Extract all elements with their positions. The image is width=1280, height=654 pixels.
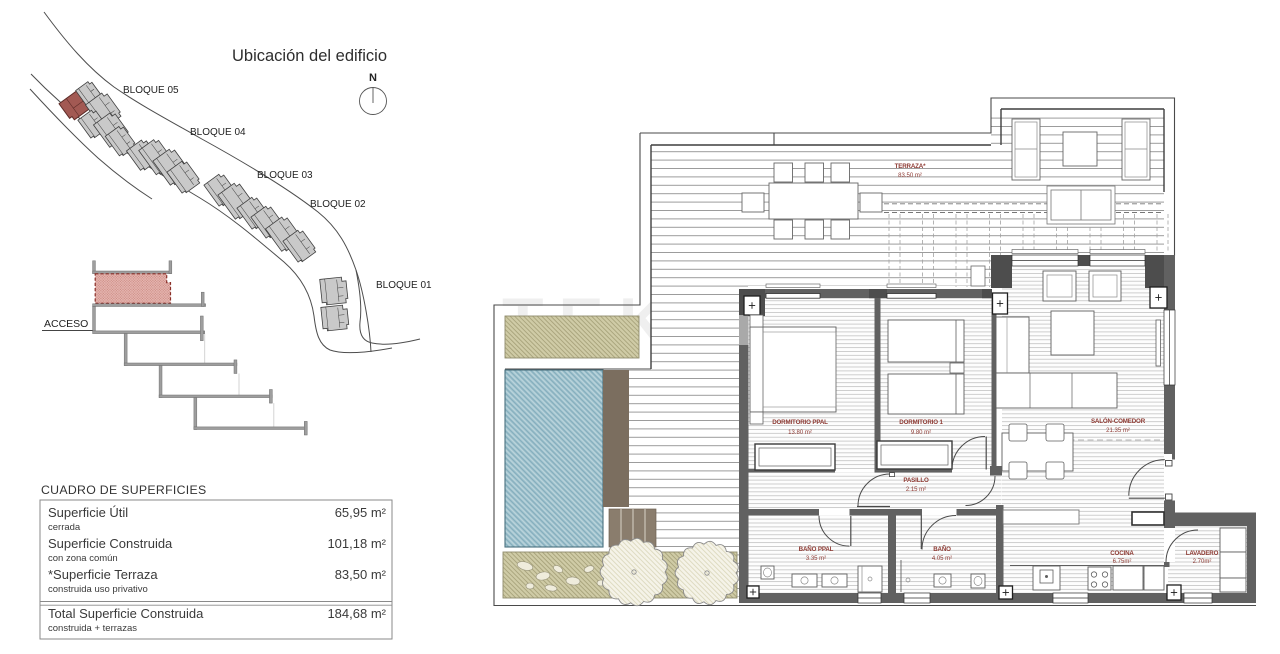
- svg-text:cerrada: cerrada: [48, 522, 81, 533]
- svg-text:4.05 m²: 4.05 m²: [932, 556, 952, 562]
- svg-text:Superficie Útil: Superficie Útil: [48, 505, 128, 520]
- svg-text:83.50 m²: 83.50 m²: [898, 173, 922, 179]
- svg-text:construida uso privativo: construida uso privativo: [48, 584, 148, 595]
- svg-text:83,50 m²: 83,50 m²: [335, 567, 387, 582]
- svg-text:construida + terrazas: construida + terrazas: [48, 623, 137, 634]
- svg-text:Superficie Construida: Superficie Construida: [48, 536, 173, 551]
- svg-text:101,18 m²: 101,18 m²: [327, 536, 386, 551]
- svg-text:6.75m²: 6.75m²: [1113, 559, 1132, 565]
- svg-text:*Superficie Terraza: *Superficie Terraza: [48, 567, 158, 582]
- svg-text:BAÑO: BAÑO: [933, 546, 951, 553]
- svg-text:COCINA: COCINA: [1110, 550, 1134, 557]
- svg-text:9.80 m²: 9.80 m²: [911, 430, 931, 436]
- svg-text:184,68 m²: 184,68 m²: [327, 606, 386, 621]
- svg-text:BAÑO PPAL: BAÑO PPAL: [799, 546, 834, 553]
- svg-text:BLOQUE 02: BLOQUE 02: [310, 199, 366, 210]
- svg-text:BLOQUE 01: BLOQUE 01: [376, 280, 432, 291]
- svg-text:65,95 m²: 65,95 m²: [335, 505, 387, 520]
- svg-text:DORMITORIO 1: DORMITORIO 1: [899, 419, 943, 426]
- svg-text:N: N: [369, 72, 377, 84]
- svg-text:2.70m²: 2.70m²: [1193, 559, 1212, 565]
- svg-text:21.35 m²: 21.35 m²: [1106, 428, 1130, 434]
- svg-text:BLOQUE 04: BLOQUE 04: [190, 127, 246, 138]
- svg-text:Ubicación del edificio: Ubicación del edificio: [232, 47, 387, 65]
- svg-text:BLOQUE 03: BLOQUE 03: [257, 170, 313, 181]
- svg-text:BLOQUE 05: BLOQUE 05: [123, 85, 179, 96]
- svg-text:ACCESO: ACCESO: [44, 318, 88, 330]
- svg-text:TERRAZA*: TERRAZA*: [895, 163, 927, 170]
- svg-text:PASILLO: PASILLO: [903, 477, 929, 484]
- svg-text:con zona común: con zona común: [48, 553, 118, 564]
- svg-text:CUADRO DE SUPERFICIES: CUADRO DE SUPERFICIES: [41, 483, 207, 497]
- svg-text:Total Superficie Construida: Total Superficie Construida: [48, 606, 204, 621]
- svg-text:2.15 m²: 2.15 m²: [906, 487, 926, 493]
- svg-text:LAVADERO: LAVADERO: [1186, 550, 1219, 557]
- svg-text:DORMITORIO PPAL: DORMITORIO PPAL: [772, 419, 828, 426]
- svg-text:3.35 m²: 3.35 m²: [806, 556, 826, 562]
- svg-text:SALÓN-COMEDOR: SALÓN-COMEDOR: [1091, 417, 1146, 425]
- svg-text:13.80 m²: 13.80 m²: [788, 430, 812, 436]
